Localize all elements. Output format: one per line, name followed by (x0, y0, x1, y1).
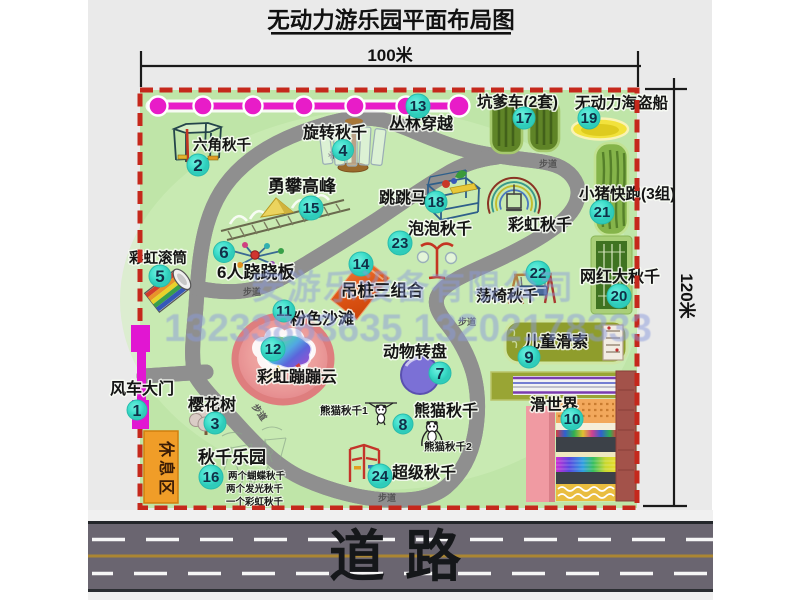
svg-text:超级秋千: 超级秋千 (391, 463, 456, 482)
svg-text:18: 18 (428, 194, 445, 211)
svg-text:彩虹蹦蹦云: 彩虹蹦蹦云 (256, 367, 337, 386)
svg-text:120米: 120米 (677, 273, 697, 319)
svg-text:网红大秋千: 网红大秋千 (580, 267, 660, 286)
svg-text:旋转秋千: 旋转秋千 (302, 123, 367, 142)
svg-text:六角秋千: 六角秋千 (193, 136, 251, 154)
svg-text:5: 5 (155, 267, 164, 286)
svg-text:4: 4 (339, 143, 348, 160)
svg-text:坑爹车(2套): 坑爹车(2套) (477, 92, 558, 111)
svg-text:彩虹秋千: 彩虹秋千 (507, 215, 572, 234)
svg-text:跳跳马: 跳跳马 (379, 188, 427, 207)
svg-text:熊猫秋千: 熊猫秋千 (414, 401, 478, 420)
svg-text:勇攀高峰: 勇攀高峰 (268, 176, 337, 196)
svg-text:休息区: 休息区 (157, 440, 176, 498)
svg-text:6: 6 (219, 243, 228, 262)
svg-text:100米: 100米 (367, 45, 413, 65)
svg-text:秋千乐园: 秋千乐园 (198, 447, 266, 467)
svg-text:熊猫秋千2: 熊猫秋千2 (424, 440, 472, 453)
svg-text:1: 1 (133, 403, 142, 420)
svg-text:两个发光秋千: 两个发光秋千 (226, 483, 284, 495)
svg-text:21: 21 (594, 204, 611, 221)
svg-text:16: 16 (203, 469, 220, 486)
svg-text:8: 8 (399, 417, 408, 434)
svg-text:24: 24 (372, 468, 389, 485)
svg-text:13233863635 13202178333: 13233863635 13202178333 (164, 307, 652, 350)
svg-text:10: 10 (564, 411, 581, 428)
svg-text:安游乐设备有限公司: 安游乐设备有限公司 (251, 269, 575, 307)
svg-text:道: 道 (329, 525, 385, 588)
svg-text:20: 20 (611, 288, 628, 305)
svg-text:2: 2 (193, 156, 202, 175)
svg-text:15: 15 (303, 200, 320, 217)
svg-text:樱花树: 樱花树 (188, 395, 236, 414)
svg-text:19: 19 (581, 110, 598, 127)
svg-text:小猪快跑(3组): 小猪快跑(3组) (579, 184, 675, 203)
svg-text:泡泡秋千: 泡泡秋千 (408, 219, 472, 238)
svg-text:彩虹滚筒: 彩虹滚筒 (128, 249, 187, 267)
svg-text:步道: 步道 (378, 492, 396, 503)
svg-text:13: 13 (410, 98, 427, 115)
svg-text:23: 23 (392, 235, 409, 252)
svg-text:7: 7 (436, 366, 445, 383)
svg-text:两个蝴蝶秋千: 两个蝴蝶秋千 (228, 470, 286, 482)
svg-text:9: 9 (524, 348, 533, 367)
svg-text:17: 17 (516, 110, 533, 127)
svg-text:熊猫秋千1: 熊猫秋千1 (320, 404, 368, 417)
svg-text:风车大门: 风车大门 (110, 379, 174, 398)
svg-text:无动力游乐园平面布局图: 无动力游乐园平面布局图 (267, 7, 515, 33)
svg-text:步道: 步道 (539, 158, 557, 169)
svg-text:3: 3 (211, 416, 220, 433)
svg-text:路: 路 (405, 525, 462, 588)
